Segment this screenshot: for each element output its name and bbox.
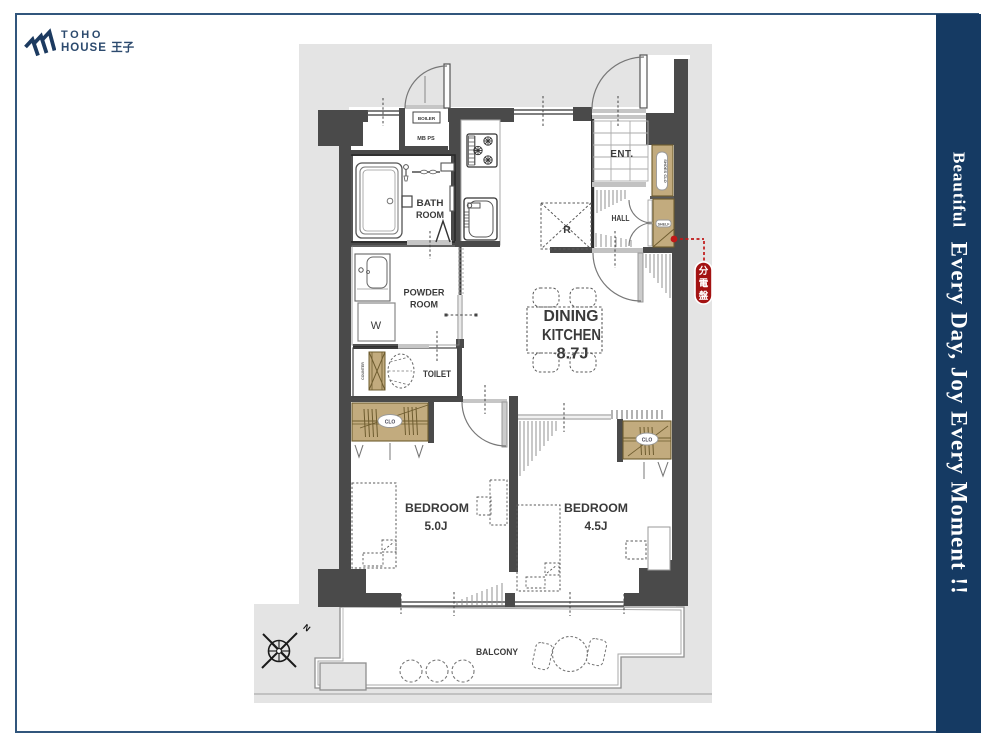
svg-text:COUNTER: COUNTER bbox=[361, 362, 365, 380]
svg-text:4.5J: 4.5J bbox=[585, 519, 608, 533]
svg-text:盤: 盤 bbox=[698, 290, 709, 302]
svg-text:MB PS: MB PS bbox=[417, 136, 435, 142]
svg-text:BALCONY: BALCONY bbox=[476, 647, 519, 658]
svg-text:BEDROOM: BEDROOM bbox=[405, 501, 469, 515]
svg-text:BATH: BATH bbox=[417, 198, 444, 209]
svg-text:ROOM: ROOM bbox=[410, 300, 438, 311]
svg-text:5.0J: 5.0J bbox=[425, 519, 448, 533]
svg-text:ROOM: ROOM bbox=[416, 210, 444, 221]
svg-text:CLO: CLO bbox=[385, 420, 396, 426]
svg-text:電: 電 bbox=[699, 277, 709, 289]
svg-text:CLO: CLO bbox=[642, 438, 653, 444]
svg-text:KITCHEN: KITCHEN bbox=[542, 327, 601, 344]
svg-text:SHOES CLO: SHOES CLO bbox=[663, 159, 668, 183]
svg-text:ENT.: ENT. bbox=[610, 149, 633, 160]
svg-text:POWDER: POWDER bbox=[404, 288, 445, 299]
svg-text:HALL: HALL bbox=[612, 213, 630, 223]
svg-text:BEDROOM: BEDROOM bbox=[564, 501, 628, 515]
svg-text:TOILET: TOILET bbox=[423, 369, 451, 380]
svg-text:R: R bbox=[563, 224, 571, 236]
svg-text:分: 分 bbox=[699, 265, 709, 277]
svg-text:BOILER: BOILER bbox=[418, 116, 436, 121]
svg-text:DINING: DINING bbox=[544, 308, 599, 325]
svg-text:SHELF: SHELF bbox=[658, 223, 671, 227]
svg-text:W: W bbox=[371, 320, 382, 332]
